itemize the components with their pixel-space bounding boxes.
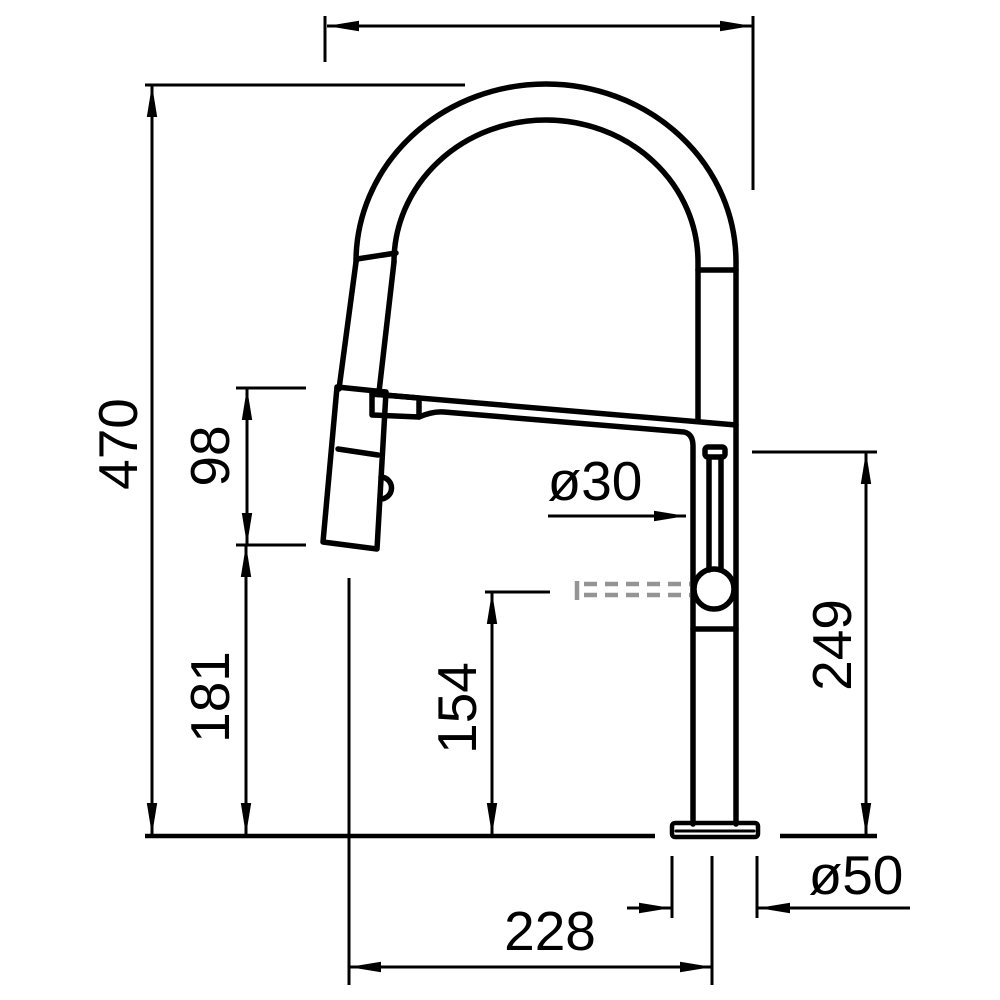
dimension-base-diameter-50: ø50 <box>627 844 910 918</box>
spray-head-seam <box>338 449 378 455</box>
faucet-outline <box>323 84 758 837</box>
dimension-label-overall-height: 470 <box>87 398 149 490</box>
spout-left-leg-outer <box>339 262 356 389</box>
dimension-label-spray-head: 98 <box>179 425 241 486</box>
dimension-outlet-height-249: 249 <box>752 452 877 835</box>
dimension-label-hose-height: 154 <box>426 662 488 754</box>
dimension-label-outlet-height: 249 <box>801 599 863 691</box>
spout-tube-inner <box>394 120 698 421</box>
dimension-label-head-bottom: 181 <box>179 651 241 743</box>
hose-ball-joint <box>694 569 734 609</box>
dimension-hose-height-154: 154 <box>426 592 550 835</box>
dimension-label-spout-reach: 228 <box>504 900 596 962</box>
spray-head <box>323 387 386 549</box>
left-tube-joint-line <box>357 253 396 259</box>
dimension-head-bottom-181: 181 <box>179 545 246 835</box>
hose-channel-lines <box>709 457 721 570</box>
faucet-technical-drawing: 470 98 181 154 249 ø30 ø50 228 <box>0 0 1000 1000</box>
phantom-hose <box>577 581 690 600</box>
dimension-spray-head-98: 98 <box>179 388 306 545</box>
dimension-label-body-diameter: ø30 <box>548 450 643 512</box>
spout-left-leg-inner <box>379 262 394 392</box>
extension-lines <box>672 856 757 918</box>
dimension-spout-reach-228: 228 <box>349 578 712 985</box>
dimension-label-base-diameter: ø50 <box>809 844 904 906</box>
dimension-body-diameter-30: ø30 <box>548 450 686 516</box>
drawing-canvas: 470 98 181 154 249 ø30 ø50 228 <box>0 0 1000 1000</box>
